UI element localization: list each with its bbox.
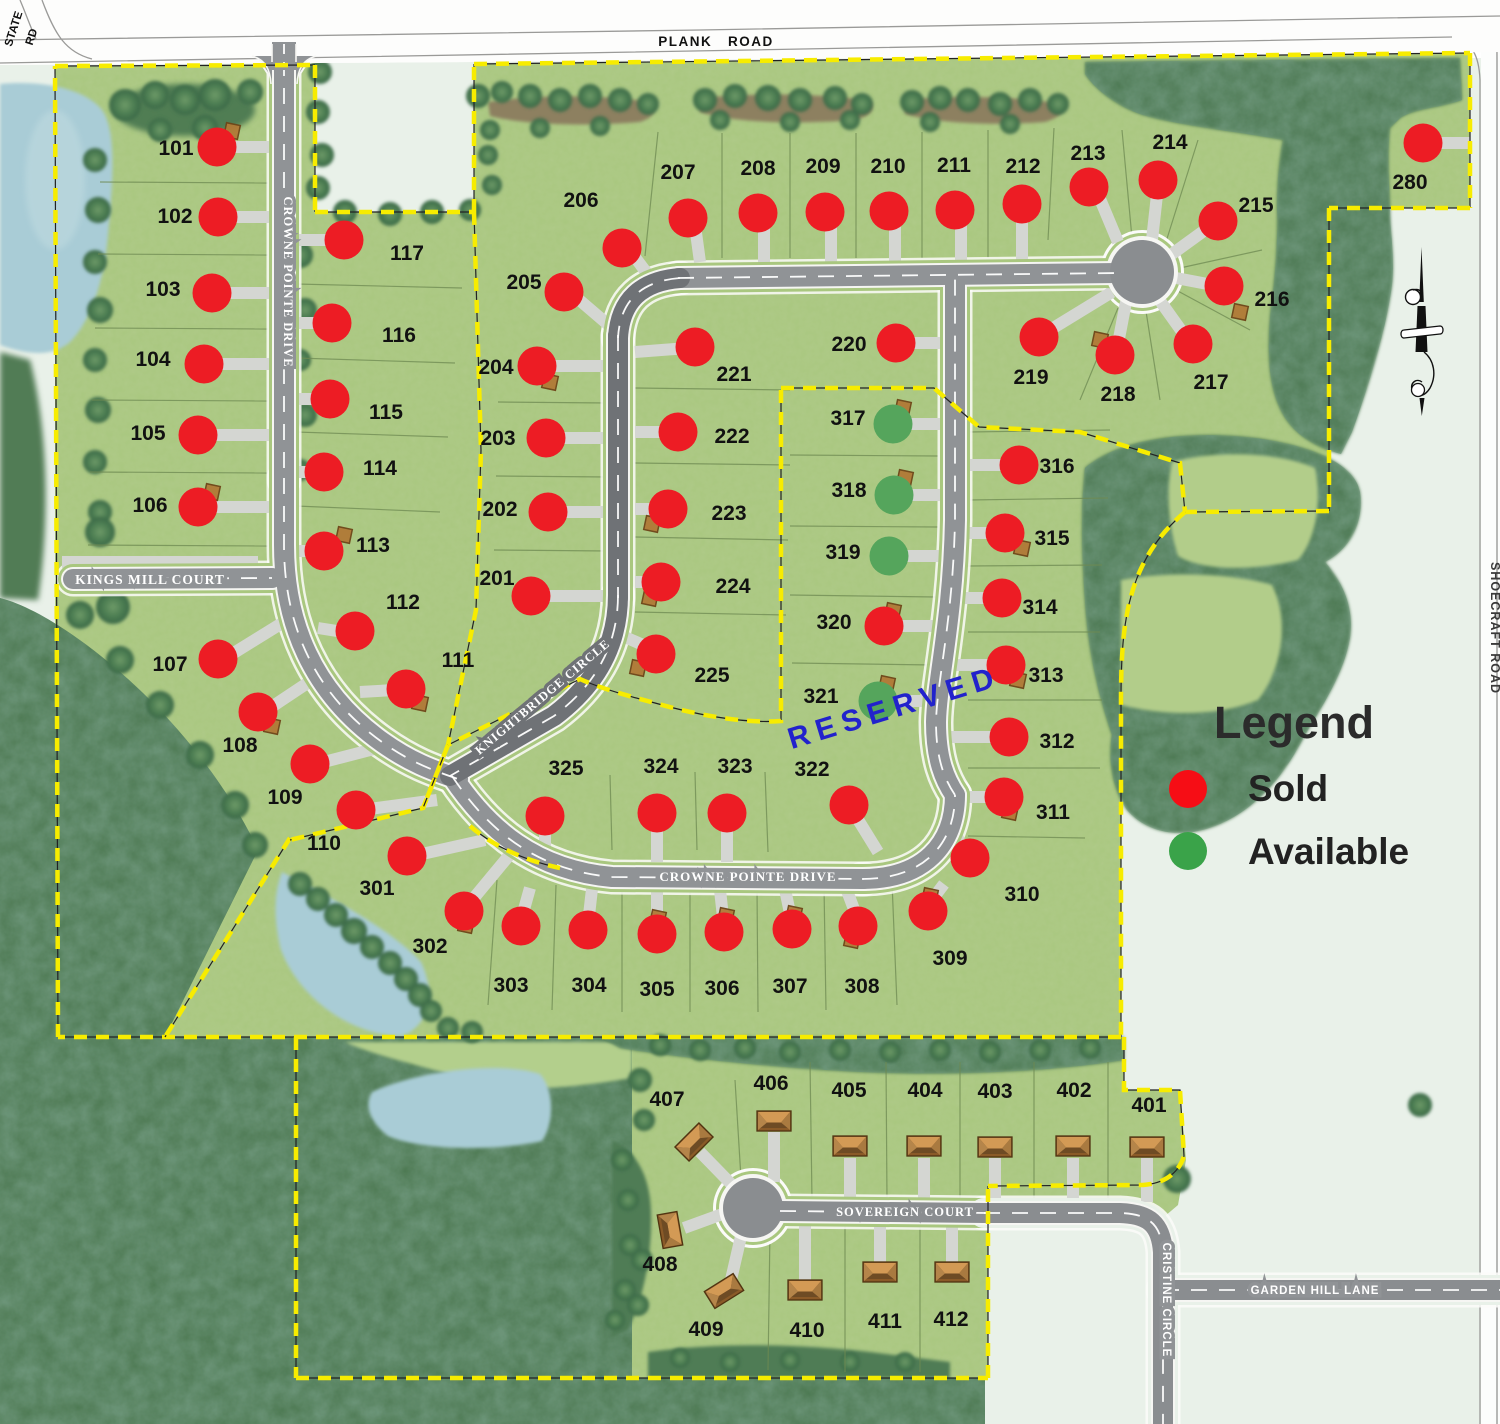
svg-text:CROWNE POINTE DRIVE: CROWNE POINTE DRIVE bbox=[281, 196, 295, 367]
svg-text:304: 304 bbox=[571, 974, 606, 997]
svg-text:107: 107 bbox=[152, 653, 187, 676]
svg-text:219: 219 bbox=[1013, 366, 1048, 389]
svg-text:312: 312 bbox=[1039, 730, 1074, 753]
svg-text:220: 220 bbox=[831, 333, 866, 356]
svg-text:313: 313 bbox=[1028, 664, 1063, 687]
svg-text:111: 111 bbox=[442, 649, 475, 672]
svg-text:113: 113 bbox=[356, 534, 390, 557]
svg-text:323: 323 bbox=[717, 755, 752, 778]
svg-text:404: 404 bbox=[907, 1079, 942, 1102]
svg-text:104: 104 bbox=[135, 348, 170, 371]
svg-text:319: 319 bbox=[825, 541, 860, 564]
svg-text:102: 102 bbox=[157, 205, 192, 228]
svg-text:320: 320 bbox=[816, 611, 851, 634]
svg-text:CROWNE POINTE DRIVE: CROWNE POINTE DRIVE bbox=[659, 869, 836, 884]
svg-text:409: 409 bbox=[688, 1318, 723, 1341]
svg-text:306: 306 bbox=[704, 977, 739, 1000]
svg-text:318: 318 bbox=[831, 479, 866, 502]
svg-text:321: 321 bbox=[803, 685, 838, 708]
svg-text:Available: Available bbox=[1248, 831, 1409, 872]
svg-text:405: 405 bbox=[831, 1079, 866, 1102]
svg-text:103: 103 bbox=[145, 278, 180, 301]
svg-text:309: 309 bbox=[932, 947, 967, 970]
svg-text:408: 408 bbox=[642, 1253, 677, 1276]
svg-text:CRISTINE CIRCLE: CRISTINE CIRCLE bbox=[1160, 1243, 1172, 1358]
svg-text:SHOECRAFT ROAD: SHOECRAFT ROAD bbox=[1488, 562, 1500, 694]
svg-text:GARDEN HILL LANE: GARDEN HILL LANE bbox=[1251, 1285, 1380, 1297]
svg-text:Legend: Legend bbox=[1214, 697, 1374, 748]
svg-text:310: 310 bbox=[1004, 883, 1039, 906]
svg-text:KINGS MILL COURT: KINGS MILL COURT bbox=[75, 572, 225, 587]
svg-text:218: 218 bbox=[1100, 383, 1135, 406]
svg-text:105: 105 bbox=[130, 422, 165, 445]
svg-text:325: 325 bbox=[548, 757, 583, 780]
svg-text:216: 216 bbox=[1254, 288, 1289, 311]
svg-text:109: 109 bbox=[267, 786, 302, 809]
svg-text:115: 115 bbox=[369, 401, 403, 424]
svg-text:213: 213 bbox=[1070, 142, 1105, 165]
svg-text:Sold: Sold bbox=[1248, 768, 1328, 809]
svg-text:410: 410 bbox=[789, 1319, 824, 1342]
svg-text:402: 402 bbox=[1056, 1079, 1091, 1102]
svg-text:401: 401 bbox=[1131, 1094, 1166, 1117]
svg-text:217: 217 bbox=[1193, 371, 1228, 394]
svg-text:117: 117 bbox=[390, 242, 424, 265]
svg-text:317: 317 bbox=[830, 407, 865, 430]
svg-text:108: 108 bbox=[222, 734, 257, 757]
svg-text:305: 305 bbox=[639, 978, 674, 1001]
svg-text:211: 211 bbox=[937, 154, 971, 177]
svg-text:112: 112 bbox=[386, 591, 420, 614]
svg-text:406: 406 bbox=[753, 1072, 788, 1095]
svg-text:322: 322 bbox=[794, 758, 829, 781]
svg-text:316: 316 bbox=[1039, 455, 1074, 478]
svg-text:212: 212 bbox=[1005, 155, 1040, 178]
svg-text:225: 225 bbox=[694, 664, 729, 687]
svg-text:412: 412 bbox=[933, 1308, 968, 1331]
svg-text:214: 214 bbox=[1152, 131, 1187, 154]
svg-text:202: 202 bbox=[482, 498, 517, 521]
svg-text:205: 205 bbox=[506, 271, 541, 294]
svg-text:315: 315 bbox=[1034, 527, 1069, 550]
svg-text:411: 411 bbox=[868, 1310, 902, 1333]
svg-text:222: 222 bbox=[714, 425, 749, 448]
svg-text:116: 116 bbox=[382, 324, 416, 347]
svg-text:302: 302 bbox=[412, 935, 447, 958]
svg-text:324: 324 bbox=[643, 755, 678, 778]
svg-text:114: 114 bbox=[363, 457, 397, 480]
svg-text:303: 303 bbox=[493, 974, 528, 997]
svg-text:224: 224 bbox=[715, 575, 750, 598]
svg-text:204: 204 bbox=[478, 356, 513, 379]
svg-text:106: 106 bbox=[132, 494, 167, 517]
svg-text:209: 209 bbox=[805, 155, 840, 178]
svg-text:280: 280 bbox=[1392, 171, 1427, 194]
svg-text:223: 223 bbox=[711, 502, 746, 525]
svg-text:206: 206 bbox=[563, 189, 598, 212]
svg-text:301: 301 bbox=[359, 877, 394, 900]
svg-text:110: 110 bbox=[307, 832, 341, 855]
svg-text:208: 208 bbox=[740, 157, 775, 180]
svg-text:308: 308 bbox=[844, 975, 879, 998]
svg-text:201: 201 bbox=[479, 567, 514, 590]
svg-text:215: 215 bbox=[1238, 194, 1273, 217]
svg-text:203: 203 bbox=[480, 427, 515, 450]
svg-text:SOVEREIGN COURT: SOVEREIGN COURT bbox=[836, 1205, 974, 1219]
svg-text:101: 101 bbox=[158, 137, 193, 160]
svg-text:PLANK ROAD: PLANK ROAD bbox=[658, 34, 774, 49]
svg-text:403: 403 bbox=[977, 1080, 1012, 1103]
svg-text:207: 207 bbox=[660, 161, 695, 184]
svg-text:407: 407 bbox=[649, 1088, 684, 1111]
svg-text:210: 210 bbox=[870, 155, 905, 178]
svg-text:314: 314 bbox=[1022, 596, 1057, 619]
svg-text:311: 311 bbox=[1036, 801, 1070, 824]
svg-text:221: 221 bbox=[716, 363, 751, 386]
svg-text:307: 307 bbox=[772, 975, 807, 998]
